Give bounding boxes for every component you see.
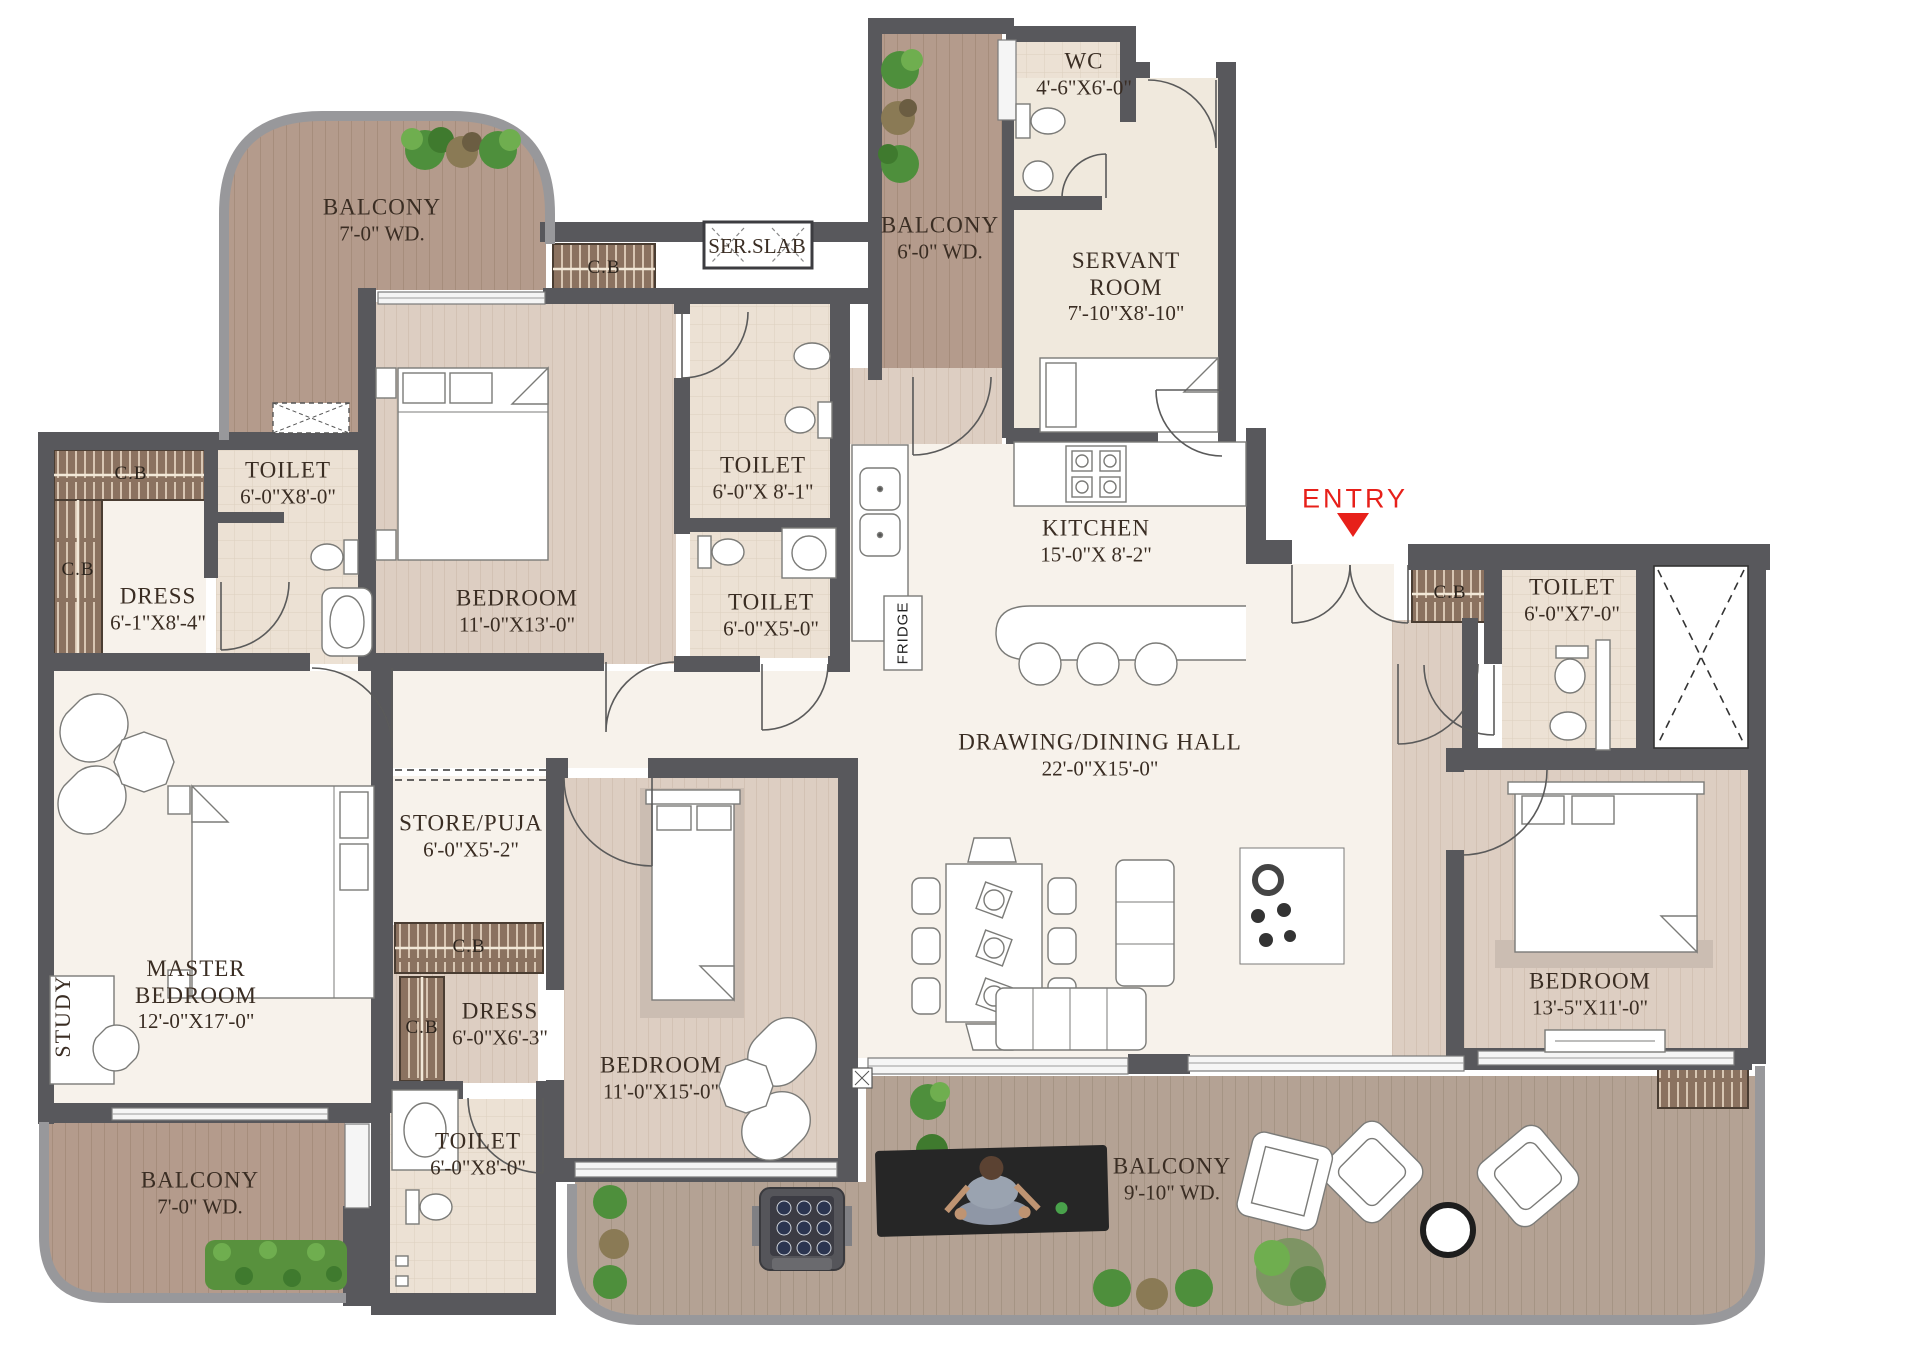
room-name2: ROOM [1068,275,1185,302]
room-name: BALCONY [881,212,999,239]
cupboard-label-dress2: C.B [405,1017,438,1039]
room-name: KITCHEN [1040,515,1152,542]
room-dims: 13'-5"X11'-0" [1529,995,1651,1019]
grill-icon [752,1188,852,1270]
room-dims: 15'-0"X 8'-2" [1040,542,1152,566]
floor-plan: BALCONY 7'-0" WD. SER.SLAB BALCONY 6'-0"… [0,0,1920,1357]
room-label-dress-upper: DRESS 6'-1"X8'-4" [110,583,206,634]
room-label-servant: SERVANT ROOM 7'-10"X8'-10" [1068,248,1185,326]
room-name: DRAWING/DINING HALL [958,729,1242,756]
room-dims: 6'-0"X5'-2" [399,837,543,861]
hedge-balcony-bl [205,1240,347,1290]
room-dims: 7'-0" WD. [141,1194,259,1218]
room-dims: 11'-0"X15'-0" [600,1079,722,1103]
room-dims: 6'-0"X5'-0" [723,616,819,640]
room-name: STORE/PUJA [399,810,543,837]
room-label-balcony-bottom: BALCONY 9'-10" WD. [1113,1153,1231,1204]
room-label-bedroom-lower: BEDROOM 11'-0"X15'-0" [600,1052,722,1103]
entry-arrow-icon [1337,513,1369,537]
room-name: BEDROOM [456,585,578,612]
room-name: DRESS [110,583,206,610]
room-label-balcony-top-left: BALCONY 7'-0" WD. [323,194,441,245]
room-dims: 11'-0"X13'-0" [456,612,578,636]
room-dims: 6'-0"X6'-3" [452,1025,548,1049]
room-name: WC [1036,48,1132,75]
room-name: BALCONY [1113,1153,1231,1180]
room-name: BALCONY [323,194,441,221]
room-dims: 6'-0"X 8'-1" [712,479,813,503]
room-name2: BEDROOM [135,983,257,1010]
room-label-dress-lower: DRESS 6'-0"X6'-3" [452,998,548,1049]
room-dims: 22'-0"X15'-0" [958,756,1242,780]
room-name: TOILET [712,452,813,479]
room-dims: 6'-0" WD. [881,239,999,263]
floor-hall-right [1248,564,1394,1058]
room-label-bedroom-right: BEDROOM 13'-5"X11'-0" [1529,968,1651,1019]
cupboard-label-entry: C.B [1433,582,1466,604]
rug-icon [1240,848,1344,964]
room-label-store: STORE/PUJA 6'-0"X5'-2" [399,810,543,861]
room-dims: 6'-0"X8'-0" [430,1155,526,1179]
room-label-hall: DRAWING/DINING HALL 22'-0"X15'-0" [958,729,1242,780]
floor-mid-corridor [390,671,850,768]
shaft [1654,566,1748,748]
room-label-toilet-mid: TOILET 6'-0"X 8'-1" [712,452,813,503]
room-dims: 6'-0"X8'-0" [240,484,336,508]
fridge-label: FRIDGE [895,602,912,665]
room-dims: 9'-10" WD. [1113,1180,1231,1204]
entry-label: ENTRY [1302,484,1408,515]
deck-table-icon [1423,1205,1473,1255]
room-name: BEDROOM [600,1052,722,1079]
room-name: SERVANT [1068,248,1185,275]
yoga-mat-person [875,1145,1109,1237]
room-label-wc: WC 4'-6"X6'-0" [1036,48,1132,99]
room-label-balcony-bl: BALCONY 7'-0" WD. [141,1167,259,1218]
room-name: TOILET [1524,574,1620,601]
room-name: STUDY [50,974,75,1057]
room-label-study: STUDY [50,974,76,1057]
room-name: BALCONY [141,1167,259,1194]
room-dims: 7'-10"X8'-10" [1068,301,1185,325]
cupboard-label-store: C.B [452,936,485,958]
floor-plan-drawing [0,0,1920,1357]
cupboard-label-dress1-left: C.B [61,559,94,581]
room-label-balcony-service: BALCONY 6'-0" WD. [881,212,999,263]
room-dims: 7'-0" WD. [323,221,441,245]
room-label-ser-slab: SER.SLAB [708,234,805,258]
room-dims: 6'-0"X7'-0" [1524,601,1620,625]
room-name: BEDROOM [1529,968,1651,995]
room-name: TOILET [430,1128,526,1155]
cupboard-label-dress1-top: C.B [114,463,147,485]
room-label-kitchen: KITCHEN 15'-0"X 8'-2" [1040,515,1152,566]
room-label-toilet-ul: TOILET 6'-0"X8'-0" [240,457,336,508]
stove-icon [1066,446,1126,502]
room-label-master: MASTER BEDROOM 12'-0"X17'-0" [135,956,257,1034]
cupboard-label-top: C.B [587,257,620,279]
bed-servant-icon [1040,358,1218,432]
room-name: SER.SLAB [708,234,805,258]
room-dims: 6'-1"X8'-4" [110,610,206,634]
room-name: TOILET [723,589,819,616]
room-name: MASTER [135,956,257,983]
room-label-toilet-bottom: TOILET 6'-0"X8'-0" [430,1128,526,1179]
bed-lower-icon [640,788,744,1018]
room-dims: 4'-6"X6'-0" [1036,75,1132,99]
room-name: TOILET [240,457,336,484]
room-dims: 12'-0"X17'-0" [135,1009,257,1033]
bed-upper-icon [376,368,548,560]
room-label-bedroom-upper: BEDROOM 11'-0"X13'-0" [456,585,578,636]
room-name: DRESS [452,998,548,1025]
room-label-toilet-small: TOILET 6'-0"X5'-0" [723,589,819,640]
room-label-toilet-right: TOILET 6'-0"X7'-0" [1524,574,1620,625]
